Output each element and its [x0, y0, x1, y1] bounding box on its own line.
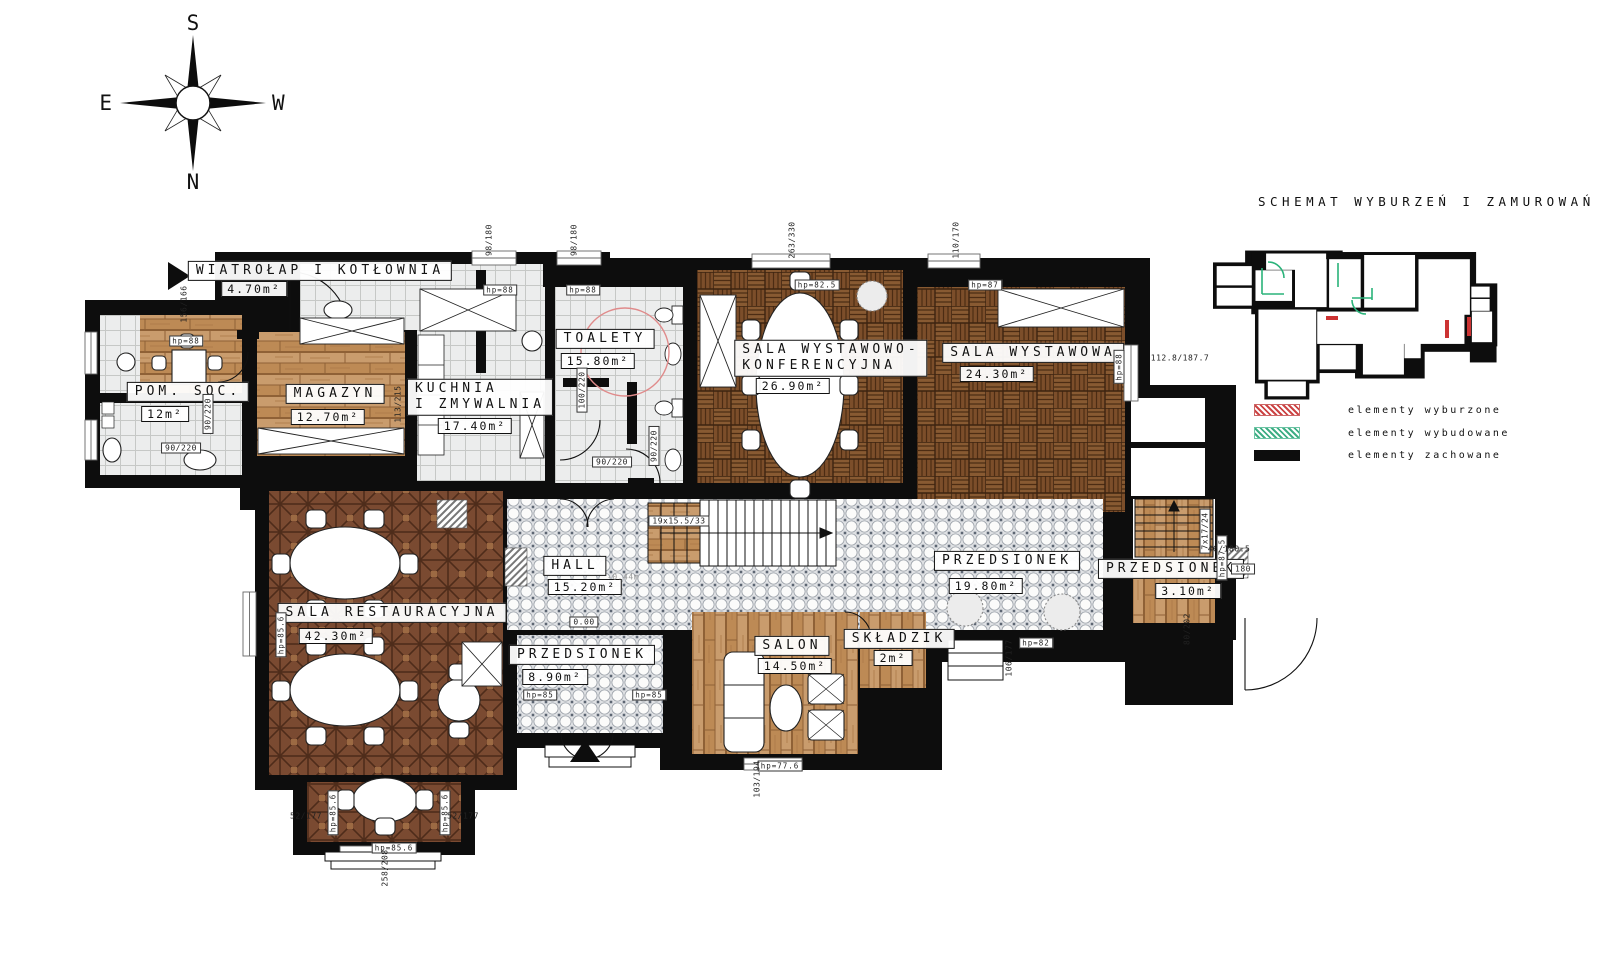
room-label-przedsionek2: PRZEDSIONEK [934, 551, 1080, 571]
room-area-konferencyjna: 26.90m² [756, 378, 830, 394]
dimension-label: 90/220 [649, 426, 660, 466]
hp-label: hp=88 [1114, 350, 1125, 384]
dimension-label: 258/208 [381, 849, 390, 886]
room-label-konferencyjna-line2: KONFERENCYJNA [742, 358, 919, 374]
dimension-label: 110/170 [952, 221, 961, 258]
compass-label-right: W [272, 91, 285, 115]
room-area-skladzik: 2m² [874, 650, 913, 666]
mini-schematic [1213, 251, 1497, 400]
room-area-wiatrolap: 4.70m² [221, 281, 287, 297]
room-area-magazyn: 12.70m² [291, 409, 365, 425]
dimension-label: 46/180.5 [1208, 545, 1251, 554]
hp-label: hp=82 [1019, 638, 1053, 649]
hp-label: hp=88 [169, 336, 203, 347]
dimension-label: 112.8/187.7 [1151, 354, 1209, 363]
dimension-label: 263/330 [788, 221, 797, 258]
main-staircase [648, 500, 836, 566]
legend-swatch-demolished-icon [1254, 404, 1300, 416]
legend-row-demolished: elementy wyburzone [1254, 404, 1510, 416]
room-label-wiatrolap: WIATROŁAP I KOTŁOWNIA [188, 261, 452, 281]
room-label-pomsoc: POM. SOC. [127, 382, 249, 402]
dimension-label: 52/177 [447, 812, 479, 821]
room-area-przedsionek2: 19.80m² [949, 578, 1023, 594]
room-label-skladzik: SKŁADZIK [844, 629, 955, 649]
room-area-restauracyjna: 42.30m² [299, 628, 373, 644]
room-label-konferencyjna-line1: SALA WYSTAWOWO- [742, 342, 919, 358]
room-label-restauracyjna: SALA RESTAURACYJNA [278, 603, 507, 623]
dimension-label: 106/177 [1005, 639, 1014, 676]
hp-label: hp=85.6 [328, 791, 339, 836]
compass-label-bottom: N [187, 170, 200, 194]
legend-label-demolished: elementy wyburzone [1348, 405, 1501, 416]
dimension-label: 180 [1231, 564, 1255, 575]
room-label-salon: SALON [754, 636, 829, 656]
hp-label: hp=85.6 [372, 843, 417, 854]
stair-dimension-label: 19x15.5/33 [648, 516, 709, 527]
hp-label: hp=87 [968, 280, 1002, 291]
room-area-przedsionek1: 8.90m² [522, 669, 588, 685]
legend-label-built: elementy wybudowane [1348, 428, 1510, 439]
room-area-przedsionek3: 3.10m² [1155, 583, 1221, 599]
dimension-label: 80/202 [1183, 613, 1192, 645]
legend-swatch-built-icon [1254, 427, 1300, 439]
dimension-label: 103/194 [753, 760, 762, 797]
dimension-label: 156/166 [180, 285, 189, 322]
room-label-konferencyjna: SALA WYSTAWOWO- KONFERENCYJNA [734, 340, 927, 377]
room-label-kuchnia-line2: I ZMYWALNIA [415, 397, 545, 413]
hp-label: hp=85 [523, 690, 557, 701]
room-label-toalety: TOALETY [556, 329, 655, 349]
hp-label: hp=88 [566, 285, 600, 296]
room-area-toalety: 15.80m² [561, 353, 635, 369]
dimension-label: 98/180 [485, 224, 494, 256]
floor-plan-sheet: S N E W SCHEMAT WYBURZEŃ I ZAMUROWAŃ ele… [0, 0, 1600, 977]
dimension-label: 90/220 [203, 394, 214, 434]
dimension-label: 98/180 [570, 224, 579, 256]
room-area-pomsoc: 12m² [141, 406, 189, 422]
room-label-magazyn: MAGAZYN [286, 384, 385, 404]
dimension-label: 90/220 [161, 443, 201, 454]
compass-label-top: S [187, 11, 200, 35]
legend-row-preserved: elementy zachowane [1254, 450, 1510, 461]
room-label-wystawowa: SALA WYSTAWOWA [942, 343, 1124, 363]
level-annotation: -0.44m [607, 573, 639, 582]
compass-rose: S N E W [99, 11, 285, 194]
dimension-label: 100/220 [577, 367, 588, 412]
legend-row-built: elementy wybudowane [1254, 427, 1510, 439]
legend-label-preserved: elementy zachowane [1348, 450, 1501, 461]
room-label-kuchnia: KUCHNIA I ZMYWALNIA [407, 379, 553, 416]
room-area-wystawowa: 24.30m² [960, 366, 1034, 382]
hp-label: hp=82.5 [795, 280, 840, 291]
room-area-salon: 14.50m² [758, 658, 832, 674]
hp-label: hp=77.6 [758, 761, 803, 772]
drawing-title: SCHEMAT WYBURZEŃ I ZAMUROWAŃ [1258, 194, 1595, 209]
legend: elementy wyburzone elementy wybudowane e… [1254, 404, 1510, 472]
hp-label: hp=85 [632, 690, 666, 701]
dimension-label: 90/220 [592, 457, 632, 468]
hp-label: hp=85.6 [276, 613, 287, 658]
legend-swatch-preserved-icon [1254, 450, 1300, 461]
room-label-kuchnia-line1: KUCHNIA [415, 381, 545, 397]
room-label-przedsionek1: PRZEDSIONEK [509, 645, 655, 665]
level-marker: 0.00 [569, 617, 598, 628]
compass-label-left: E [99, 91, 112, 115]
room-area-kuchnia: 17.40m² [438, 418, 512, 434]
hp-label: hp=87.5 [1217, 536, 1228, 581]
room-label-hall: HALL [543, 556, 606, 576]
dimension-label: 113/215 [394, 385, 403, 422]
hp-label: hp=88 [483, 285, 517, 296]
floor-plan-drawing: S N E W [0, 0, 1600, 977]
dimension-label: 52/177 [290, 812, 322, 821]
